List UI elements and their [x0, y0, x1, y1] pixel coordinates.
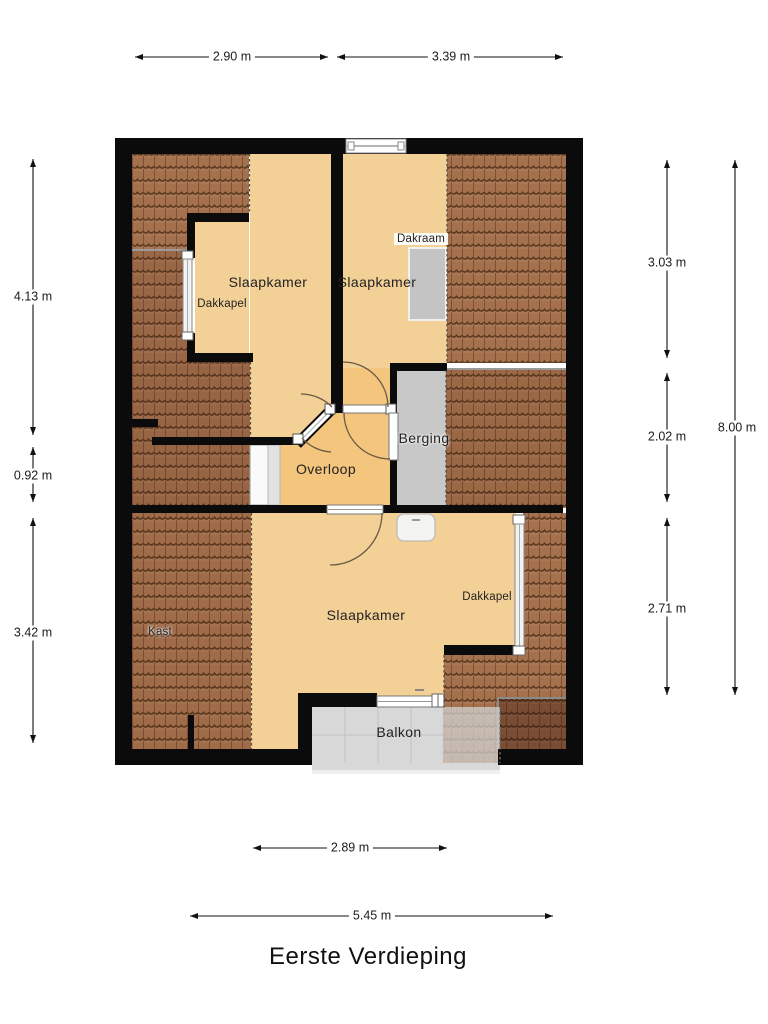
dim-label-top-2: 3.39 m	[428, 50, 474, 65]
roof-shade	[132, 250, 187, 362]
page-title: Eerste Verdieping	[269, 943, 467, 971]
floorplan-drawing	[0, 0, 768, 1024]
dim-label-right-3: 2.71 m	[644, 602, 690, 617]
balcony	[312, 707, 500, 774]
dim-label-bottom-1: 2.89 m	[327, 841, 373, 856]
roof-shade	[446, 370, 567, 508]
dim-label-bottom-2: 5.45 m	[349, 909, 395, 924]
roof-shade-dark	[498, 698, 567, 749]
wall-balcony-top	[298, 693, 377, 707]
balcony-shadow	[312, 763, 500, 770]
window-dakkapel-left	[182, 251, 193, 340]
room-label-slaapkamer-1: Slaapkamer	[229, 274, 308, 290]
dim-label-right-1: 3.03 m	[644, 256, 690, 271]
room-label-berging: Berging	[398, 430, 449, 446]
window-top	[346, 139, 406, 153]
wall-dormer-bottom	[187, 353, 253, 362]
wall-dakkapel-bottom	[444, 645, 520, 655]
sink-fixture	[397, 514, 435, 541]
dim-label-right-2: 2.02 m	[644, 430, 690, 445]
dim-label-top-1: 2.90 m	[209, 50, 255, 65]
wall-bedroom1-bottom	[152, 437, 298, 445]
floorplan-page: 2.90 m 3.39 m 4.13 m 0.92 m 3.42 m 3.03 …	[0, 0, 768, 1024]
roof-shade	[132, 362, 250, 505]
dim-label-right-total: 8.00 m	[714, 421, 760, 436]
feature-label-dakkapel-left: Dakkapel	[197, 298, 247, 310]
room-label-kast: Kast	[148, 626, 172, 638]
wall-outer-left	[115, 138, 132, 765]
feature-label-dakkapel-right: Dakkapel	[462, 591, 512, 603]
room-label-balkon: Balkon	[376, 724, 421, 740]
wall-mid-left	[115, 505, 327, 513]
dim-label-left-1: 4.13 m	[10, 290, 56, 305]
wall-outer-right	[566, 138, 583, 765]
wall-berging-top	[390, 363, 447, 371]
wall-dormer-top	[187, 213, 249, 222]
dim-label-left-3: 3.42 m	[10, 626, 56, 641]
wall-kast-stub	[188, 715, 194, 749]
wall-mid-right	[383, 505, 563, 513]
dim-label-left-2: 0.92 m	[10, 469, 56, 484]
staircase	[250, 445, 280, 505]
room-label-slaapkamer-3: Slaapkamer	[327, 607, 406, 623]
wall-stub-left	[130, 419, 158, 427]
feature-label-dakraam: Dakraam	[394, 233, 448, 245]
wall-outer-bottom-left	[115, 749, 312, 765]
wall-outer-bottom-right	[498, 749, 583, 765]
door-berging	[389, 413, 398, 460]
room-label-slaapkamer-2: Slaapkamer	[338, 274, 417, 290]
balcony-shadow	[312, 770, 500, 774]
window-dakkapel-right	[513, 515, 525, 655]
door-slaapkamer-3	[327, 505, 383, 514]
room-label-overloop: Overloop	[296, 461, 356, 477]
floor-slaapkamer-1	[250, 154, 331, 437]
